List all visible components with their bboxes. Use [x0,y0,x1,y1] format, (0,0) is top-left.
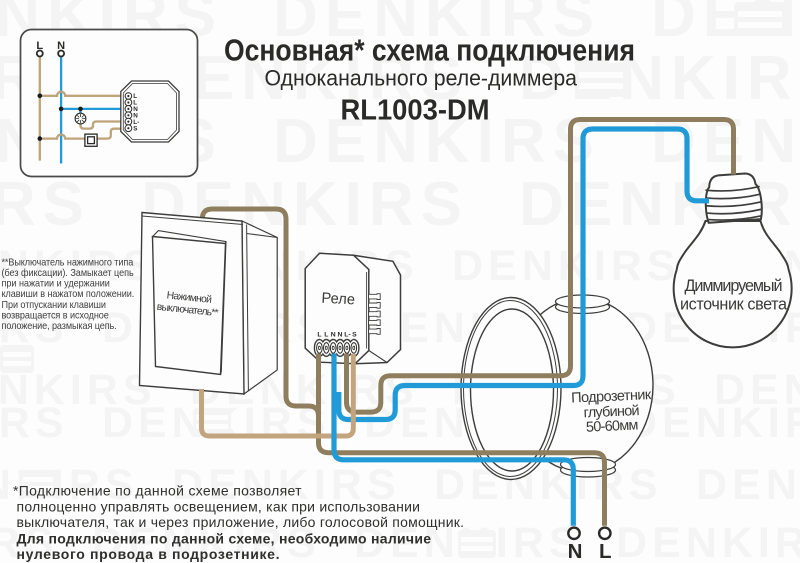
svg-text:L-: L- [344,332,350,339]
svg-text:положение, размыкая цепь.: положение, размыкая цепь. [1,320,116,332]
svg-text:L: L [317,332,321,339]
svg-text:L: L [599,540,612,563]
svg-text:нулевого провода в подрозетник: нулевого провода в подрозетнике. [17,546,280,562]
svg-text:DENKIRS: DENKIRS [434,461,663,509]
svg-text:DENKIRS: DENKIRS [0,170,91,239]
svg-text:DENKIRS: DENKIRS [0,399,69,447]
svg-text:N: N [338,332,343,339]
svg-text:Одноканального реле-диммера: Одноканального реле-диммера [265,66,578,91]
svg-text:Реле: Реле [321,290,355,309]
svg-text:Для подключения по данной схем: Для подключения по данной схеме, необход… [17,530,432,546]
svg-text:источник света: источник света [680,296,787,314]
svg-text:Диммируемый: Диммируемый [685,277,783,295]
svg-text:DENKIRS: DENKIRS [616,519,800,563]
svg-text:*Подключение по данной схеме п: *Подключение по данной схеме позволяет [13,483,302,499]
svg-text:S: S [133,125,137,132]
svg-text:S: S [352,332,357,339]
svg-text:N: N [568,540,583,563]
svg-text:Основная* схема подключения: Основная* схема подключения [224,33,635,68]
svg-text:N: N [331,332,336,339]
svg-text:выключателя, так и через прило: выключателя, так и через приложение, либ… [17,514,465,530]
svg-text:DENKIRS: DENKIRS [626,399,800,447]
svg-text:L: L [324,332,328,339]
svg-text:DENKIRS: DENKIRS [696,461,800,509]
svg-text:RL1003-DM: RL1003-DM [341,95,490,127]
svg-text:DENKIRS: DENKIRS [452,242,681,290]
svg-text:полноценно управлять освещение: полноценно управлять освещением, как при… [17,498,421,514]
svg-text:50-60мм: 50-60мм [586,417,639,435]
